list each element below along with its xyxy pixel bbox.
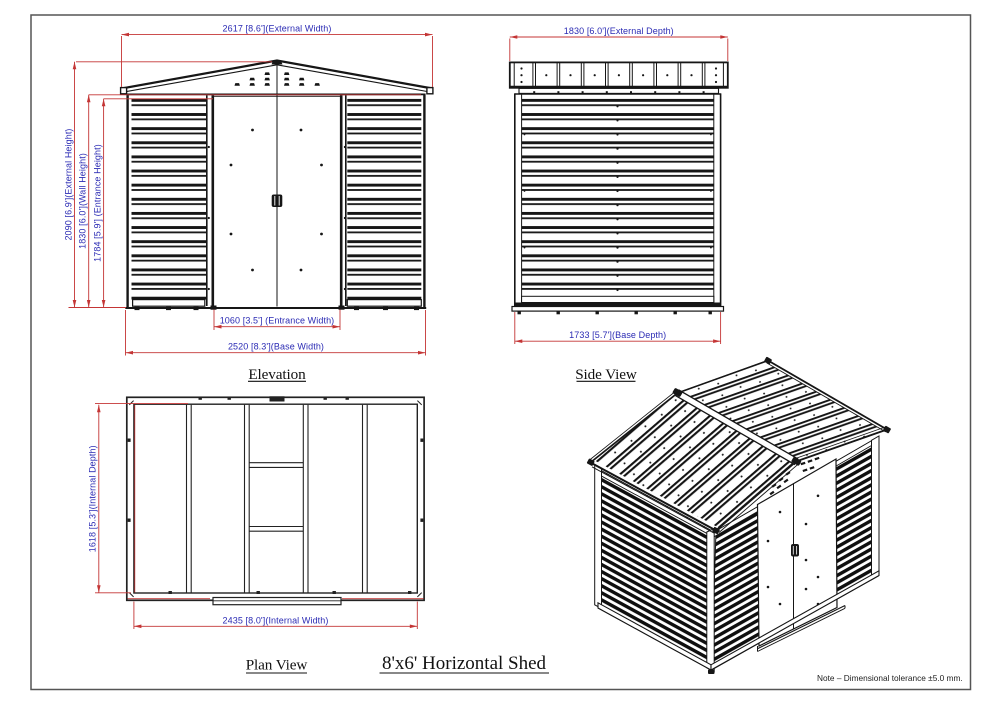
svg-text:Side View: Side View <box>575 366 637 383</box>
svg-text:8'x6' Horizontal Shed: 8'x6' Horizontal Shed <box>382 653 547 674</box>
svg-text:Elevation: Elevation <box>248 366 306 383</box>
svg-text:2090 [6.9'](External Height): 2090 [6.9'](External Height) <box>63 128 73 240</box>
svg-text:1733 [5.7'](Base Depth): 1733 [5.7'](Base Depth) <box>569 330 666 340</box>
svg-text:2617 [8.6'](External Width): 2617 [8.6'](External Width) <box>223 24 332 34</box>
svg-text:1060 [3.5'] (Entrance Width: 1060 [3.5'] (Entrance Width) <box>220 316 335 326</box>
svg-text:Plan View: Plan View <box>246 656 308 673</box>
svg-text:2435 [8.0'](Internal Width): 2435 [8.0'](Internal Width) <box>223 615 329 625</box>
svg-text:1618 [5.3'](Internal Depth): 1618 [5.3'](Internal Depth) <box>88 445 98 552</box>
svg-text:1830 [6.0'](Wall Height): 1830 [6.0'](Wall Height) <box>78 153 88 249</box>
svg-text:1784 [5.9'] (Entrance Heigh: 1784 [5.9'] (Entrance Height) <box>92 144 102 262</box>
svg-text:1830 [6.0'](External Depth): 1830 [6.0'](External Depth) <box>564 26 674 36</box>
svg-text:2520 [8.3'](Base Width): 2520 [8.3'](Base Width) <box>228 342 324 352</box>
svg-text:Note – Dimensional toleranc: Note – Dimensional tolerance ±5.0 mm. <box>817 673 963 683</box>
